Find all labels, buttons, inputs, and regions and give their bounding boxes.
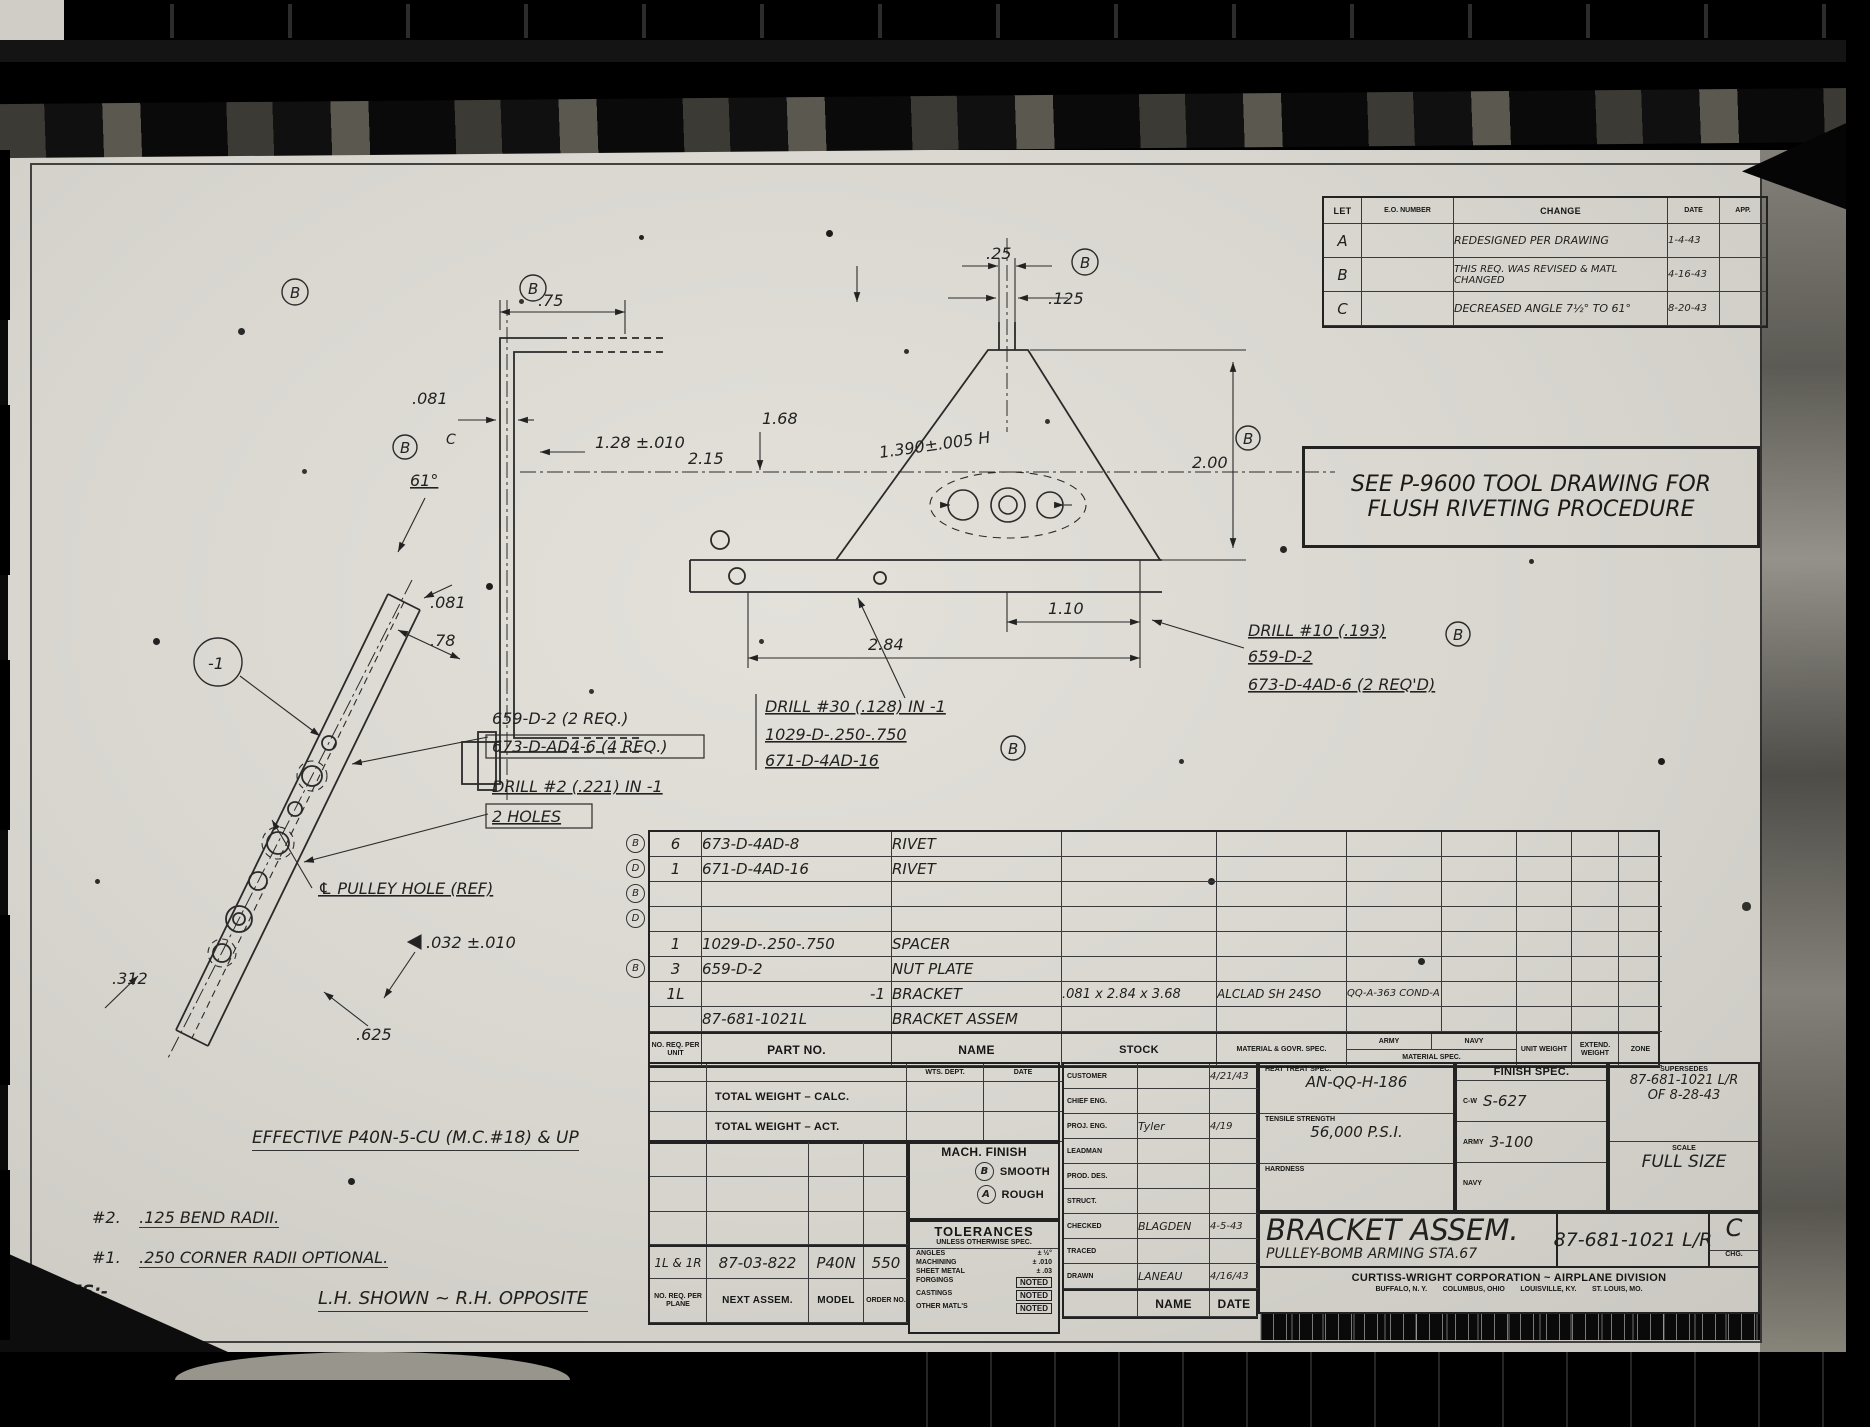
part-material: [1217, 857, 1347, 882]
wts-dept-header: WTS. DEPT.: [907, 1064, 984, 1082]
tol-value-noted: NOTED: [1016, 1303, 1052, 1314]
part-stock: [1062, 857, 1217, 882]
dim-168: 1.68: [762, 409, 798, 428]
part-name: BRACKET: [892, 982, 1062, 1007]
empty-cell: [650, 1212, 707, 1245]
rev-col-change: CHANGE: [1454, 198, 1668, 224]
supersedes-cell: SUPERSEDES 87-681-1021 L/R OF 8-28-43: [1610, 1064, 1758, 1142]
part-ext-wt: [1572, 882, 1619, 907]
empty-cell: [864, 1177, 908, 1212]
empty-cell: [707, 1177, 809, 1212]
part-zone: [1619, 857, 1662, 882]
spacer-cell: [1064, 1291, 1138, 1317]
rev-col-eo: E.O. NUMBER: [1362, 198, 1454, 224]
scale-label: SCALE: [1610, 1142, 1758, 1152]
part-navy: [1442, 907, 1517, 932]
drawing-number-cell: 87-681-1021 L/R: [1558, 1214, 1710, 1266]
note-2-tag: #2.: [92, 1208, 121, 1227]
torn-paper-edge: [0, 88, 1870, 158]
scale-value: FULL SIZE: [1610, 1152, 1758, 1172]
heat-treat-block: HEAT TREAT SPEC. AN-QQ-H-186 TENSILE STR…: [1258, 1062, 1455, 1212]
tol-value: ± .03: [1036, 1268, 1052, 1275]
part-navy: [1442, 857, 1517, 882]
flag-b5: B: [1243, 430, 1253, 448]
part-number: 671-D-4AD-16: [702, 857, 892, 882]
dim-032: .032 ±.010: [426, 933, 516, 952]
signoff-date: [1210, 1239, 1258, 1264]
tool-drawing-note-box: SEE P-9600 TOOL DRAWING FOR FLUSH RIVETI…: [1302, 446, 1760, 548]
callout-671d: 671-D-4AD-16: [765, 751, 879, 770]
signoff-label: DRAWN: [1064, 1264, 1138, 1289]
note-line-2: FLUSH RIVETING PROCEDURE: [1367, 497, 1694, 522]
weight-act-date: [984, 1112, 1062, 1142]
callout-drill30: DRILL #30 (.128) IN -1: [765, 697, 946, 716]
row-flag: D: [626, 909, 645, 928]
signoff-row: LEADMAN: [1064, 1139, 1256, 1164]
spacer-cell: [707, 1064, 907, 1082]
spacer-cell: [650, 1112, 707, 1142]
part-navy: [1442, 882, 1517, 907]
callout-673dad46: 673-D-AD4-6 (4 REQ.): [492, 737, 668, 756]
signoff-label: CHIEF ENG.: [1064, 1089, 1138, 1114]
part-army: [1347, 957, 1442, 982]
weights-header-row: WTS. DEPT. DATE: [650, 1064, 1058, 1082]
dim-200: 2.00: [1192, 453, 1228, 472]
empty-cell: [707, 1142, 809, 1177]
scanned-engineering-drawing: .75 .081 1.28 ±.010 1.68 2.15 61° C .25 …: [0, 0, 1870, 1427]
exposure-strip: [1260, 1314, 1760, 1340]
tol-value-noted: NOTED: [1016, 1290, 1052, 1301]
signoff-row: PROJ. ENG. Tyler 4/19: [1064, 1114, 1256, 1139]
flag-b2: B: [528, 280, 538, 298]
part-ext-wt: [1572, 982, 1619, 1007]
empty-grid-row: [650, 1177, 906, 1212]
tol-label: CASTINGS: [916, 1290, 952, 1301]
mach-finish-title: MACH. FINISH: [910, 1142, 1058, 1159]
weight-calc-date: [984, 1082, 1062, 1112]
note-line-1: SEE P-9600 TOOL DRAWING FOR: [1351, 472, 1711, 497]
parts-row: 3 659-D-2 NUT PLATE: [650, 957, 1658, 982]
army-value: 3-100: [1490, 1133, 1534, 1151]
part-army: [1347, 932, 1442, 957]
row-flag: B: [626, 834, 645, 853]
finish-cw-row: C-W S-627: [1457, 1081, 1606, 1122]
part-qty: [650, 882, 702, 907]
rev-col-date: DATE: [1668, 198, 1720, 224]
parts-row: 1 671-D-4AD-16 RIVET: [650, 857, 1658, 882]
film-gray-blob: [175, 1352, 570, 1380]
row-flag: B: [626, 959, 645, 978]
effectivity-note: EFFECTIVE P40N-5-CU (M.C.#18) & UP: [252, 1128, 579, 1151]
part-zone: [1619, 982, 1662, 1007]
tol-value: ± ½°: [1038, 1250, 1052, 1257]
signoff-name: [1138, 1089, 1210, 1114]
part-material: [1217, 1007, 1347, 1032]
tol-label: OTHER MATL'S: [916, 1303, 968, 1314]
cw-value: S-627: [1483, 1092, 1527, 1110]
callout-673d4ad6: 673-D-4AD-6 (2 REQ'D): [1248, 675, 1435, 694]
part-navy: [1442, 1007, 1517, 1032]
rev-col-app: APP.: [1720, 198, 1766, 224]
film-edge-left: [0, 150, 10, 1352]
part-unit-wt: [1517, 882, 1572, 907]
wts-date-header: DATE: [984, 1064, 1062, 1082]
revision-row-c: C DECREASED ANGLE 7½° TO 61° 8-20-43: [1324, 292, 1766, 326]
signoff-date: 4/16/43: [1210, 1264, 1258, 1289]
rev-app: [1720, 258, 1766, 292]
part-stock: [1062, 957, 1217, 982]
part-ext-wt: [1572, 857, 1619, 882]
tol-label: MACHINING: [916, 1259, 956, 1266]
signoff-label: CUSTOMER: [1064, 1064, 1138, 1089]
signoff-name: LANEAU: [1138, 1264, 1210, 1289]
film-streaks: [900, 1352, 1870, 1427]
film-edge-bottom: [0, 1352, 1870, 1427]
signoff-name: [1138, 1239, 1210, 1264]
signoff-date: 4-5-43: [1210, 1214, 1258, 1239]
model-value: P40N: [809, 1247, 864, 1279]
parts-header-row: NO. REQ. PER UNIT PART NO. NAME STOCK MA…: [650, 1032, 1658, 1066]
row-flag: B: [626, 884, 645, 903]
part-name: RIVET: [892, 857, 1062, 882]
part-army: QQ-A-363 COND-A: [1347, 982, 1442, 1007]
signoff-name: [1138, 1139, 1210, 1164]
tol-label: FORGINGS: [916, 1277, 953, 1288]
rev-let: B: [1324, 258, 1362, 292]
weights-block: WTS. DEPT. DATE TOTAL WEIGHT – CALC. TOT…: [648, 1062, 1060, 1144]
weight-calc-row: TOTAL WEIGHT – CALC.: [650, 1082, 1058, 1112]
parts-row-assembly: 87-681-1021L BRACKET ASSEM: [650, 1007, 1658, 1032]
part-name: [892, 907, 1062, 932]
part-unit-wt: [1517, 857, 1572, 882]
supersedes-number: 87-681-1021 L/R: [1610, 1073, 1758, 1088]
part-material: [1217, 932, 1347, 957]
parts-list-table: 6 673-D-4AD-8 RIVET 1 671-D-4AD-16 RIVET: [648, 830, 1660, 1068]
part-unit-wt: [1517, 907, 1572, 932]
signoff-row: PROD. DES.: [1064, 1164, 1256, 1189]
row-flag: D: [626, 859, 645, 878]
gusset-view: [690, 322, 1162, 592]
part-qty: 3: [650, 957, 702, 982]
part-material: [1217, 907, 1347, 932]
part-number: [702, 907, 892, 932]
tolerance-item: MACHINING ± .010: [910, 1258, 1058, 1267]
callout-drill2: DRILL #2 (.221) IN -1: [492, 777, 663, 796]
dim-081-wall: .081: [412, 389, 448, 408]
dim-312: .312: [112, 969, 148, 988]
revision-cell: C CHG.: [1710, 1214, 1758, 1266]
empty-cell: [809, 1142, 864, 1177]
balloon-dash1: -1: [208, 654, 224, 673]
rev-col-let: LET: [1324, 198, 1362, 224]
rough-symbol: A: [977, 1185, 996, 1204]
note-1: #1. .250 CORNER RADII OPTIONAL.: [92, 1248, 388, 1268]
empty-grid-row: [650, 1142, 906, 1177]
supersedes-scale-block: SUPERSEDES 87-681-1021 L/R OF 8-28-43 SC…: [1608, 1062, 1760, 1212]
rev-app: [1720, 224, 1766, 258]
finish-spec-label: FINISH SPEC.: [1457, 1064, 1606, 1081]
note-1-tag: #1.: [92, 1248, 121, 1267]
model-label: MODEL: [809, 1279, 864, 1323]
spacer-cell: [650, 1082, 707, 1112]
part-navy: [1442, 957, 1517, 982]
part-navy: [1442, 832, 1517, 857]
weight-act-row: TOTAL WEIGHT – ACT.: [650, 1112, 1058, 1142]
finish-army-row: ARMY 3-100: [1457, 1122, 1606, 1163]
part-navy: [1442, 932, 1517, 957]
signoff-date: [1210, 1139, 1258, 1164]
flag-b4: B: [1080, 254, 1090, 272]
dim-284: 2.84: [868, 635, 904, 654]
part-qty: 6: [650, 832, 702, 857]
note-2-text: .125 BEND RADII.: [139, 1208, 279, 1228]
req-per-plane-label: NO. REQ. PER PLANE: [650, 1279, 707, 1323]
header-navy: NAVY: [1432, 1034, 1516, 1049]
signoff-label: PROD. DES.: [1064, 1164, 1138, 1189]
part-army: [1347, 832, 1442, 857]
rev-change: DECREASED ANGLE 7½° TO 61°: [1454, 292, 1668, 326]
tensile-cell: TENSILE STRENGTH 56,000 P.S.I.: [1260, 1114, 1453, 1164]
signoff-date: [1210, 1089, 1258, 1114]
part-qty: [650, 1007, 702, 1032]
tensile-value: 56,000 P.S.I.: [1260, 1123, 1453, 1141]
lh-rh-note: L.H. SHOWN ~ R.H. OPPOSITE: [318, 1288, 588, 1312]
hardness-label: HARDNESS: [1260, 1164, 1453, 1173]
drawing-subtitle: PULLEY-BOMB ARMING STA.67: [1266, 1246, 1556, 1262]
rev-eo: [1362, 258, 1454, 292]
empty-grid: [648, 1140, 908, 1247]
part-ext-wt: [1572, 832, 1619, 857]
date-footer-label: DATE: [1210, 1291, 1258, 1317]
title-cell: BRACKET ASSEM. PULLEY-BOMB ARMING STA.67: [1260, 1214, 1558, 1266]
tolerance-item: SHEET METAL ± .03: [910, 1267, 1058, 1276]
empty-cell: [864, 1142, 908, 1177]
part-stock: .081 x 2.84 x 3.68: [1062, 982, 1217, 1007]
part-ext-wt: [1572, 932, 1619, 957]
next-assem-label: NEXT ASSEM.: [707, 1279, 809, 1323]
part-unit-wt: [1517, 932, 1572, 957]
total-weight-act-label: TOTAL WEIGHT – ACT.: [707, 1112, 907, 1142]
signoff-name: [1138, 1164, 1210, 1189]
callout-1029d: 1029-D-.250-.750: [765, 725, 907, 744]
part-name: RIVET: [892, 832, 1062, 857]
signoff-row: STRUCT.: [1064, 1189, 1256, 1214]
order-no-label: ORDER NO.: [864, 1279, 908, 1323]
film-sprocket-speckles: [0, 4, 1870, 38]
rev-change: REDESIGNED PER DRAWING: [1454, 224, 1668, 258]
rev-eo: [1362, 224, 1454, 258]
part-name: NUT PLATE: [892, 957, 1062, 982]
navy-label: NAVY: [1457, 1180, 1488, 1187]
empty-cell: [809, 1212, 864, 1245]
name-footer-label: NAME: [1138, 1291, 1210, 1317]
part-stock: [1062, 832, 1217, 857]
part-ext-wt: [1572, 1007, 1619, 1032]
part-material: [1217, 882, 1347, 907]
dim-125: .125: [1048, 289, 1084, 308]
part-material: ALCLAD SH 24SO: [1217, 982, 1347, 1007]
weight-calc-value: [907, 1082, 984, 1112]
callout-2holes: 2 HOLES: [492, 807, 561, 826]
next-assem-value: 87-03-822: [707, 1247, 809, 1279]
revision-header-row: LET E.O. NUMBER CHANGE DATE APP.: [1324, 198, 1766, 224]
smooth-symbol: B: [975, 1162, 994, 1181]
smooth-row: B SMOOTH: [910, 1159, 1058, 1181]
mach-finish-box: MACH. FINISH B SMOOTH A ROUGH: [908, 1140, 1060, 1220]
chg-label: CHG.: [1710, 1251, 1758, 1258]
tolerance-item: CASTINGS NOTED: [910, 1289, 1058, 1302]
dim-215: 2.15: [688, 449, 724, 468]
part-name: [892, 882, 1062, 907]
part-qty: [650, 907, 702, 932]
signoff-table: CUSTOMER 4/21/43 CHIEF ENG. PROJ. ENG. T…: [1062, 1062, 1258, 1319]
header-army: ARMY: [1347, 1034, 1432, 1049]
part-stock: [1062, 882, 1217, 907]
rev-date: 8-20-43: [1668, 292, 1720, 326]
smooth-label: SMOOTH: [1000, 1166, 1050, 1178]
film-edge-right: [1846, 0, 1870, 1427]
signoff-date: 4/19: [1210, 1114, 1258, 1139]
finish-spec-block: FINISH SPEC. C-W S-627 ARMY 3-100 NAVY: [1455, 1062, 1608, 1212]
part-army: [1347, 1007, 1442, 1032]
part-qty: 1: [650, 857, 702, 882]
flag-b1: B: [290, 284, 300, 302]
supersedes-date: OF 8-28-43: [1610, 1088, 1758, 1103]
film-corner-gap: [0, 0, 64, 40]
spacer-cell: [650, 1064, 707, 1082]
signoff-row: CUSTOMER 4/21/43: [1064, 1064, 1256, 1089]
part-number: 659-D-2: [702, 957, 892, 982]
company-locations: BUFFALO, N. Y. COLUMBUS, OHIO LOUISVILLE…: [1260, 1284, 1758, 1293]
part-material: [1217, 957, 1347, 982]
heat-treat-cell: HEAT TREAT SPEC. AN-QQ-H-186: [1260, 1064, 1453, 1114]
revision-letter: C: [1710, 1214, 1758, 1251]
part-number: 87-681-1021L: [702, 1007, 892, 1032]
dim-081-strip: .081: [430, 593, 466, 612]
usage-values-row: 1L & 1R 87-03-822 P40N 550: [650, 1247, 906, 1279]
part-stock: [1062, 932, 1217, 957]
rev-date: 4-16-43: [1668, 258, 1720, 292]
total-weight-calc-label: TOTAL WEIGHT – CALC.: [707, 1082, 907, 1112]
part-army: [1347, 907, 1442, 932]
signoff-name: BLAGDEN: [1138, 1214, 1210, 1239]
flag-b3: B: [400, 439, 410, 457]
dim-78: .78: [430, 631, 455, 650]
dim-128: 1.28 ±.010: [595, 433, 685, 452]
signoff-date: [1210, 1189, 1258, 1214]
dim-1390: 1.390±.005 H: [878, 428, 992, 462]
rev-let: A: [1324, 224, 1362, 258]
revision-table: LET E.O. NUMBER CHANGE DATE APP. A REDES…: [1322, 196, 1768, 328]
parts-row-empty: [650, 907, 1658, 932]
part-qty: 1: [650, 932, 702, 957]
signoff-row: CHIEF ENG.: [1064, 1089, 1256, 1114]
signoff-footer: NAME DATE: [1064, 1289, 1256, 1317]
signoff-label: CHECKED: [1064, 1214, 1138, 1239]
callout-pulley-hole: ℄ PULLEY HOLE (REF): [318, 879, 493, 898]
part-zone: [1619, 882, 1662, 907]
flag-b7: B: [1453, 626, 1463, 644]
part-navy: [1442, 982, 1517, 1007]
tol-value: ± .010: [1033, 1259, 1052, 1266]
dim-110: 1.10: [1048, 599, 1084, 618]
part-unit-wt: [1517, 1007, 1572, 1032]
rev-app: [1720, 292, 1766, 326]
drawing-title: BRACKET ASSEM.: [1266, 1214, 1556, 1246]
empty-cell: [707, 1212, 809, 1245]
rivet-hole-cluster: [930, 472, 1086, 538]
tolerance-item: FORGINGS NOTED: [910, 1276, 1058, 1289]
tolerances-title: TOLERANCES: [910, 1222, 1058, 1239]
part-number: -1: [702, 982, 892, 1007]
part-stock: [1062, 907, 1217, 932]
title-block: BRACKET ASSEM. PULLEY-BOMB ARMING STA.67…: [1258, 1212, 1760, 1268]
rough-label: ROUGH: [1002, 1189, 1044, 1201]
tol-value-noted: NOTED: [1016, 1277, 1052, 1288]
part-zone: [1619, 832, 1662, 857]
part-zone: [1619, 932, 1662, 957]
rev-date: 1-4-43: [1668, 224, 1720, 258]
usage-labels-row: NO. REQ. PER PLANE NEXT ASSEM. MODEL ORD…: [650, 1279, 906, 1323]
part-unit-wt: [1517, 982, 1572, 1007]
rev-change: THIS REQ. WAS REVISED & MATL CHANGED: [1454, 258, 1668, 292]
signoff-name: Tyler: [1138, 1114, 1210, 1139]
note-2: #2. .125 BEND RADII.: [92, 1208, 279, 1228]
parts-row-empty: [650, 882, 1658, 907]
finish-navy-row: NAVY: [1457, 1163, 1606, 1203]
tol-label: SHEET METAL: [916, 1268, 965, 1275]
dim-25: .25: [986, 244, 1011, 263]
part-name: BRACKET ASSEM: [892, 1007, 1062, 1032]
parts-row-bracket: 1L -1 BRACKET .081 x 2.84 x 3.68 ALCLAD …: [650, 982, 1658, 1007]
signoff-date: 4/21/43: [1210, 1064, 1258, 1089]
signoff-label: TRACED: [1064, 1239, 1138, 1264]
signoff-row: CHECKED BLAGDEN 4-5-43: [1064, 1214, 1256, 1239]
parts-row: 6 673-D-4AD-8 RIVET: [650, 832, 1658, 857]
empty-cell: [650, 1177, 707, 1212]
part-army: [1347, 857, 1442, 882]
dim-625: .625: [356, 1025, 392, 1044]
tolerances-box: TOLERANCES UNLESS OTHERWISE SPEC. ANGLES…: [908, 1220, 1060, 1334]
dim-75: .75: [538, 291, 563, 310]
part-name: SPACER: [892, 932, 1062, 957]
weight-act-value: [907, 1112, 984, 1142]
part-zone: [1619, 957, 1662, 982]
scale-cell: SCALE FULL SIZE: [1610, 1142, 1758, 1212]
callout-drill10: DRILL #10 (.193): [1248, 621, 1386, 640]
usage-table: 1L & 1R 87-03-822 P40N 550 NO. REQ. PER …: [648, 1245, 908, 1325]
empty-cell: [650, 1142, 707, 1177]
film-edge-top: [0, 0, 1870, 150]
army-label: ARMY: [1457, 1139, 1490, 1146]
rev-let: C: [1324, 292, 1362, 326]
callout-659d2: 659-D-2 (2 REQ.): [492, 709, 628, 728]
revision-row-a: A REDESIGNED PER DRAWING 1-4-43: [1324, 224, 1766, 258]
signoff-label: PROJ. ENG.: [1064, 1114, 1138, 1139]
company-block: CURTISS-WRIGHT CORPORATION ~ AIRPLANE DI…: [1258, 1268, 1760, 1314]
part-ext-wt: [1572, 907, 1619, 932]
signoff-row: DRAWN LANEAU 4/16/43: [1064, 1264, 1256, 1289]
part-number: [702, 882, 892, 907]
empty-cell: [864, 1212, 908, 1245]
note-1-text: .250 CORNER RADII OPTIONAL.: [139, 1248, 388, 1268]
signoff-label: STRUCT.: [1064, 1189, 1138, 1214]
drawing-number: 87-681-1021 L/R: [1554, 1229, 1713, 1251]
req-per-plane-value: 1L & 1R: [650, 1247, 707, 1279]
signoff-name: [1138, 1189, 1210, 1214]
rough-row: A ROUGH: [910, 1181, 1058, 1204]
signoff-date: [1210, 1164, 1258, 1189]
